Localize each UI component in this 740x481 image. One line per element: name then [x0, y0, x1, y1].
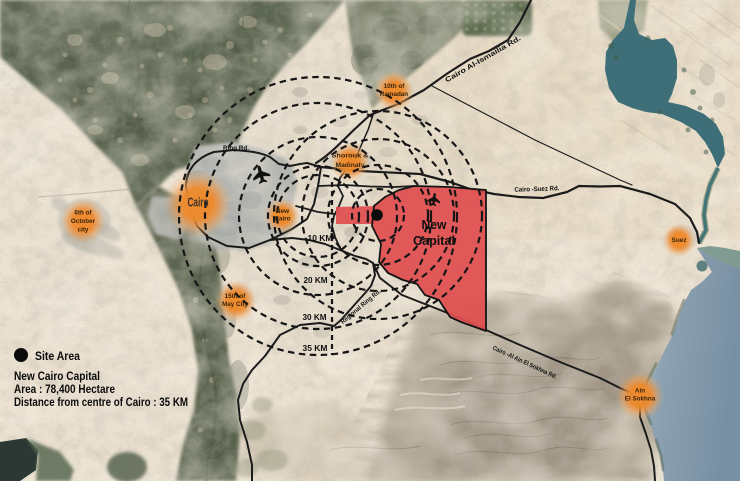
svg-text:Cairo: Cairo — [188, 196, 209, 210]
svg-text:6th of: 6th of — [74, 210, 92, 217]
svg-text:35 KM: 35 KM — [303, 344, 328, 353]
svg-text:Cairo: Cairo — [274, 216, 290, 223]
svg-text:New Cairo Capital: New Cairo Capital — [14, 371, 100, 383]
svg-text:October: October — [71, 218, 96, 225]
svg-text:10 KM: 10 KM — [308, 234, 333, 243]
svg-text:El Sokhna: El Sokhna — [625, 396, 656, 403]
svg-text:Suez: Suez — [672, 237, 687, 244]
svg-text:May City: May City — [222, 301, 248, 308]
svg-text:20 KM: 20 KM — [304, 276, 328, 285]
svg-text:New: New — [276, 208, 289, 215]
svg-text:Area : 78,400 Hectare: Area : 78,400 Hectare — [14, 384, 115, 396]
svg-text:Ain: Ain — [635, 388, 645, 395]
svg-text:Ramadan: Ramadan — [380, 91, 408, 98]
svg-text:30 KM: 30 KM — [303, 313, 327, 322]
svg-text:Distance from centre of Cairo: Distance from centre of Cairo : 35 KM — [14, 397, 188, 409]
svg-text:city: city — [78, 227, 89, 234]
svg-text:Capital: Capital — [413, 234, 455, 248]
svg-text:10th of: 10th of — [384, 83, 406, 90]
svg-text:Shorouk &: Shorouk & — [332, 153, 369, 160]
svg-text:15th of: 15th of — [225, 293, 247, 300]
svg-text:Ring Rd.: Ring Rd. — [223, 145, 249, 152]
svg-text:Madinaty: Madinaty — [336, 162, 365, 169]
svg-text:New: New — [422, 218, 447, 232]
svg-text:Site Area: Site Area — [35, 351, 81, 363]
